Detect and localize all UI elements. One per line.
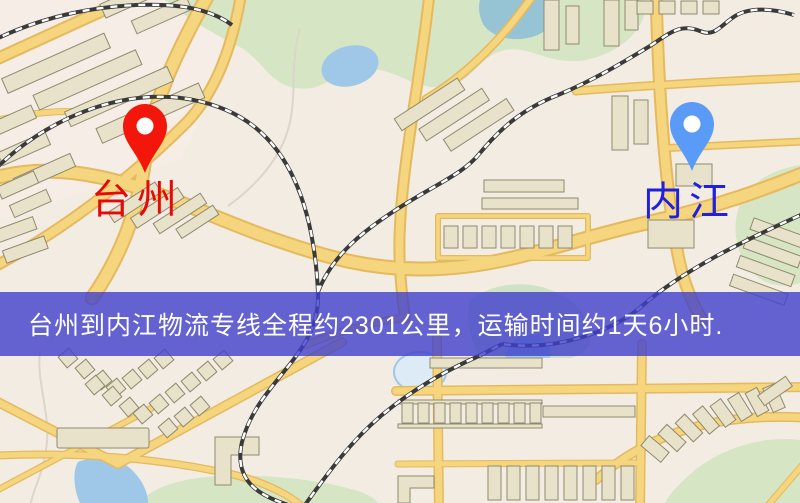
- origin-city-label: 台州: [91, 180, 183, 220]
- route-info-text: 台州到内江物流专线全程约2301公里，运输时间约1天6小时.: [28, 306, 723, 342]
- map-background: [0, 0, 800, 503]
- destination-pin-hole: [684, 116, 701, 133]
- logistics-route-map: 台州 内江 台州到内江物流专线全程约2301公里，运输时间约1天6小时.: [0, 0, 800, 503]
- destination-city-label: 内江: [643, 182, 735, 222]
- route-info-banner: 台州到内江物流专线全程约2301公里，运输时间约1天6小时.: [0, 292, 800, 356]
- origin-pin-hole: [137, 118, 154, 135]
